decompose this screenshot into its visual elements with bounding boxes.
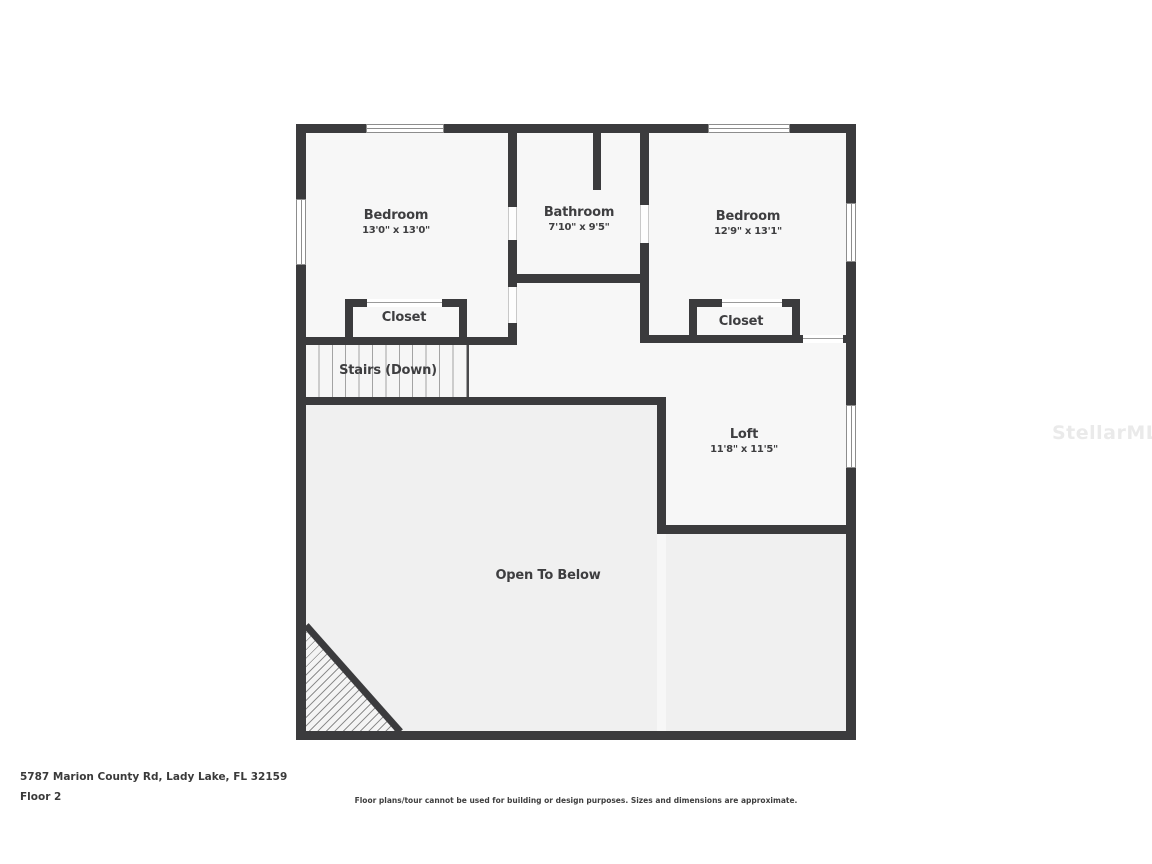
address-text: 5787 Marion County Rd, Lady Lake, FL 321… xyxy=(20,771,287,783)
window-bedroom-left-top xyxy=(366,124,444,133)
room-dims: 11'8" x 11'5" xyxy=(710,444,778,457)
room-name: Closet xyxy=(382,310,427,326)
wall-closet-right-top-a xyxy=(689,299,722,307)
wall-outer-bottom xyxy=(296,731,856,740)
wall-bathroom-bottom xyxy=(508,274,649,283)
open-to-below-area-right xyxy=(666,534,846,731)
floor-plan: Bedroom 13'0" x 13'0" Bathroom 7'10" x 9… xyxy=(296,124,856,740)
wall-bedroom-left-bottom xyxy=(296,337,517,345)
wall-loft-bottom xyxy=(657,525,856,534)
closet-door-opening-right xyxy=(722,299,782,307)
room-label-loft: Loft 11'8" x 11'5" xyxy=(710,427,778,457)
room-name: Bedroom xyxy=(714,209,782,225)
room-label-closet-right: Closet xyxy=(719,314,764,330)
door-opening-bedroom-left-hall xyxy=(508,287,517,323)
room-label-bathroom: Bathroom 7'10" x 9'5" xyxy=(544,205,614,235)
room-name: Stairs (Down) xyxy=(339,363,437,379)
wall-bedroom-right-bottom-cap xyxy=(843,335,856,343)
disclaimer-text: Floor plans/tour cannot be used for buil… xyxy=(355,796,798,805)
wall-bathroom-right-lower xyxy=(640,243,649,343)
wall-bedroom-right-bottom xyxy=(640,335,803,343)
wall-bathroom-right-upper xyxy=(640,133,649,205)
wall-below-stairs xyxy=(296,397,666,405)
closet-door-opening-left xyxy=(367,299,442,307)
room-name: Closet xyxy=(719,314,764,330)
room-label-bedroom-right: Bedroom 12'9" x 13'1" xyxy=(714,209,782,239)
room-dims: 7'10" x 9'5" xyxy=(544,222,614,235)
room-label-closet-left: Closet xyxy=(382,310,427,326)
wall-bathroom-left-upper xyxy=(508,133,517,207)
wall-closet-left-top-a xyxy=(345,299,367,307)
room-name: Open To Below xyxy=(495,568,600,584)
wall-closet-left-top-b xyxy=(442,299,467,307)
wall-closet-right-top-b xyxy=(782,299,800,307)
window-bedroom-left-side xyxy=(296,199,306,265)
room-label-open-to-below: Open To Below xyxy=(495,568,600,584)
stairs-edge-line xyxy=(467,345,469,397)
floor-label: Floor 2 xyxy=(20,791,61,803)
stellar-mls-watermark: StellarMLS xyxy=(1052,422,1152,444)
room-label-bedroom-left: Bedroom 13'0" x 13'0" xyxy=(362,208,430,238)
wall-loft-left xyxy=(657,397,666,533)
wall-bathroom-stub xyxy=(593,133,601,190)
room-dims: 12'9" x 13'1" xyxy=(714,226,782,239)
room-name: Bathroom xyxy=(544,205,614,221)
window-bedroom-right-top xyxy=(708,124,790,133)
door-opening-bedroom-right xyxy=(803,335,843,343)
room-dims: 13'0" x 13'0" xyxy=(362,225,430,238)
room-name: Loft xyxy=(710,427,778,443)
door-opening-bathroom-right xyxy=(640,205,649,243)
window-bedroom-right-side xyxy=(846,203,856,262)
room-label-stairs: Stairs (Down) xyxy=(339,363,437,379)
room-name: Bedroom xyxy=(362,208,430,224)
door-opening-bathroom-left xyxy=(508,207,517,240)
floor-plan-page: { "watermark": { "text": "StellarMLS" },… xyxy=(0,0,1152,864)
window-loft-side xyxy=(846,405,856,468)
